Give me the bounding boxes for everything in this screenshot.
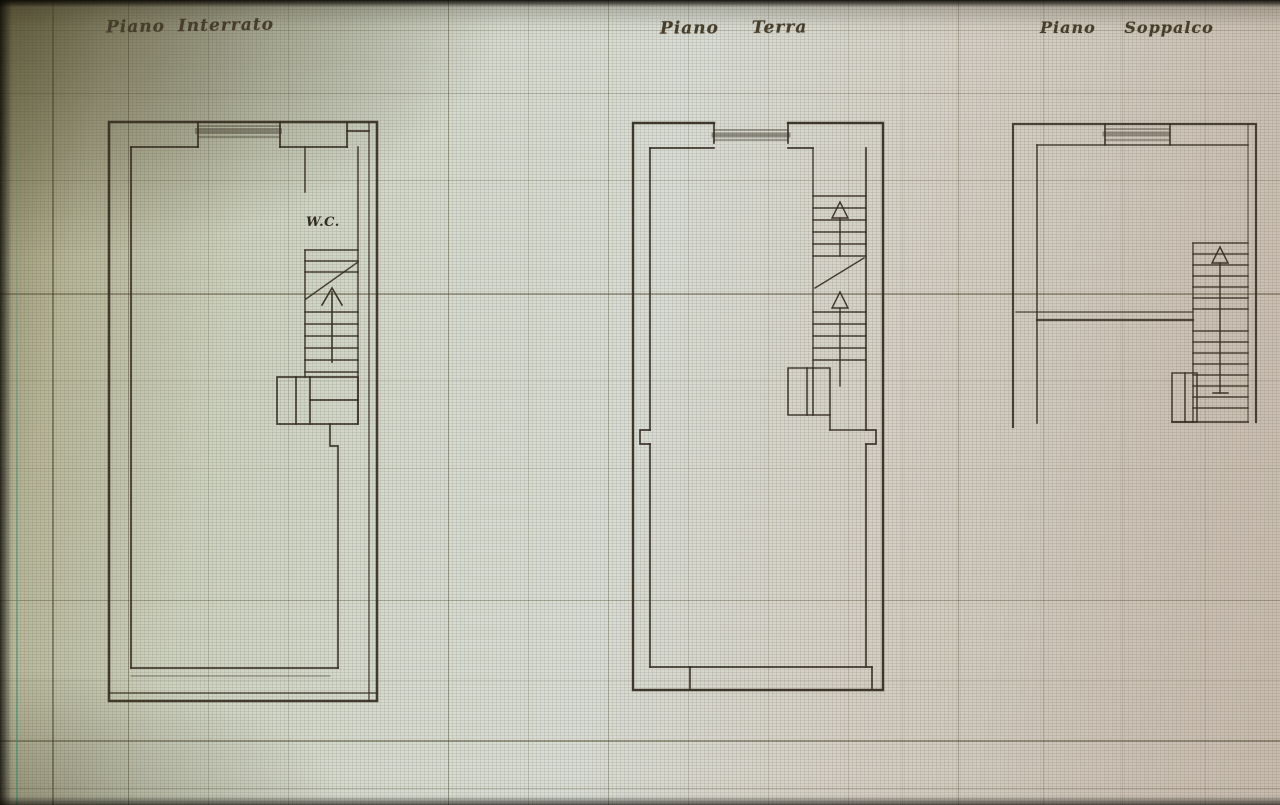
photo-edge-top <box>0 0 1280 7</box>
stair-arrow-upper <box>832 202 848 256</box>
photo-edge-bottom <box>0 796 1280 805</box>
outer-wall-double-lines <box>109 122 377 701</box>
grid-line-horizontal <box>0 93 1280 94</box>
wc-label: W.C. <box>306 215 340 230</box>
paper-margin-line <box>16 0 18 805</box>
floorplan-terra-drawing <box>620 110 900 700</box>
floorplan-interrato-drawing: W.C. <box>95 110 395 710</box>
floorplan-soppalco-drawing <box>1000 110 1270 455</box>
window-opening <box>714 123 788 143</box>
grid-line-vertical <box>902 0 903 805</box>
stair-landing <box>788 368 866 430</box>
stair-landing <box>277 377 358 668</box>
staircase <box>1172 243 1248 422</box>
window-opening <box>1105 124 1170 145</box>
grid-line-horizontal <box>0 788 1280 789</box>
grid-line-vertical <box>528 0 529 805</box>
stair-direction-arrow <box>322 288 342 362</box>
outer-walls <box>109 122 377 701</box>
photo-edge-left <box>0 0 12 805</box>
grid-line-horizontal <box>0 740 1280 742</box>
grid-line-vertical <box>448 0 449 805</box>
interior-walls <box>131 122 369 668</box>
grid-line-vertical <box>52 0 54 805</box>
mezzanine-edge <box>1016 312 1193 320</box>
floor-title-soppalco: Piano Soppalco <box>1040 18 1214 37</box>
grid-line-vertical <box>958 0 959 805</box>
floor-title-terra: Piano Terra <box>660 17 807 38</box>
floor-title-interrato: Piano Interrato <box>106 15 274 38</box>
stair-direction-arrow <box>1212 247 1228 393</box>
window-opening <box>198 126 280 137</box>
stair-arrow-lower <box>832 292 848 386</box>
grid-line-vertical <box>608 0 609 805</box>
interior-walls <box>1037 145 1248 423</box>
scanned-floorplan-photo: Piano Interrato Piano Terra Piano Soppal… <box>0 0 1280 805</box>
staircase <box>305 147 358 424</box>
